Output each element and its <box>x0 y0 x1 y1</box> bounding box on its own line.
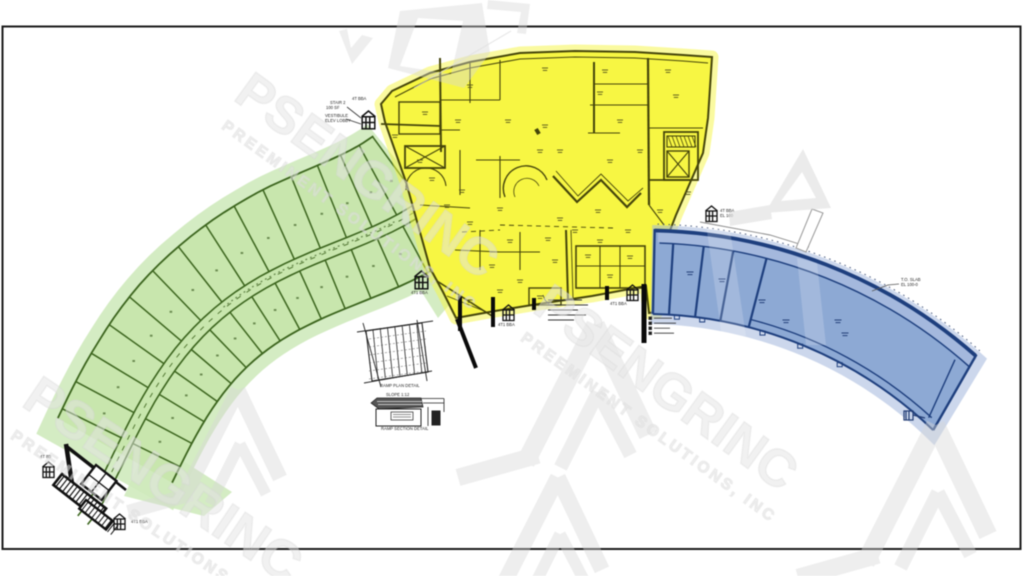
svg-text:4T1 BBA: 4T1 BBA <box>498 322 515 327</box>
svg-text:RAMP PLAN DETAIL: RAMP PLAN DETAIL <box>380 383 420 388</box>
svg-text:EL 100-0: EL 100-0 <box>901 282 919 287</box>
svg-text:RAMP SECTION DETAIL: RAMP SECTION DETAIL <box>381 426 429 431</box>
svg-text:4T1 BBA: 4T1 BBA <box>610 301 627 306</box>
svg-text:100 SF: 100 SF <box>326 105 340 110</box>
svg-text:4T1 BBA: 4T1 BBA <box>411 290 428 295</box>
svg-text:4T BBA: 4T BBA <box>352 96 367 101</box>
svg-text:SLOPE 1:12: SLOPE 1:12 <box>386 392 410 397</box>
